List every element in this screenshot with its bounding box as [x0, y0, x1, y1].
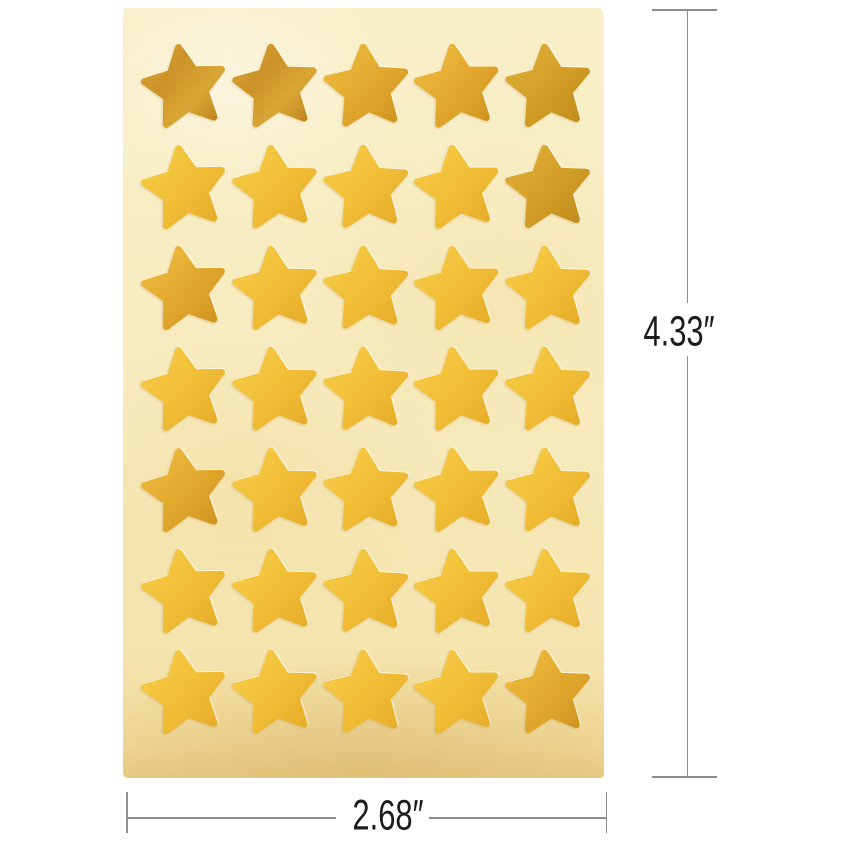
star-sticker [499, 543, 599, 643]
star-sticker [226, 38, 326, 138]
star-sticker [317, 139, 417, 239]
width-line-left [127, 817, 336, 819]
height-top-tick [652, 9, 717, 11]
width-line-right [429, 817, 606, 819]
product-dimension-image: 4.33″ 2.68″ [0, 0, 850, 850]
star-sticker [408, 442, 508, 542]
star-sticker [135, 38, 235, 138]
star-sticker [499, 341, 599, 441]
star-sticker [135, 442, 235, 542]
star-sticker [499, 139, 599, 239]
star-sticker [317, 442, 417, 542]
star-sticker [408, 240, 508, 340]
star-sticker [408, 341, 508, 441]
star-sticker [408, 644, 508, 744]
star-sticker [317, 644, 417, 744]
star-sticker [135, 139, 235, 239]
star-sticker [408, 139, 508, 239]
star-sticker [135, 644, 235, 744]
star-sticker [317, 38, 417, 138]
star-sticker [317, 341, 417, 441]
star-sticker [226, 341, 326, 441]
star-sticker [499, 240, 599, 340]
height-line-lower [687, 356, 689, 777]
star-sticker [226, 442, 326, 542]
star-sticker [135, 240, 235, 340]
star-sticker [408, 543, 508, 643]
star-sticker [226, 240, 326, 340]
height-line-upper [687, 10, 689, 303]
star-sticker [499, 38, 599, 138]
sticker-sheet [123, 8, 604, 778]
star-sticker [317, 543, 417, 643]
vertical-dimension-backdrop [633, 0, 733, 788]
width-dimension-label: 2.68″ [352, 795, 423, 838]
star-sticker [135, 341, 235, 441]
star-sticker [226, 543, 326, 643]
star-sticker [135, 543, 235, 643]
height-bottom-tick [652, 776, 717, 778]
star-sticker [226, 644, 326, 744]
star-sticker [499, 644, 599, 744]
star-sticker [499, 442, 599, 542]
star-sticker [408, 38, 508, 138]
width-right-tick [606, 792, 608, 833]
star-sticker [226, 139, 326, 239]
star-sticker [317, 240, 417, 340]
height-dimension-label: 4.33″ [643, 311, 714, 354]
star-grid [123, 8, 604, 778]
width-left-tick [126, 792, 128, 833]
